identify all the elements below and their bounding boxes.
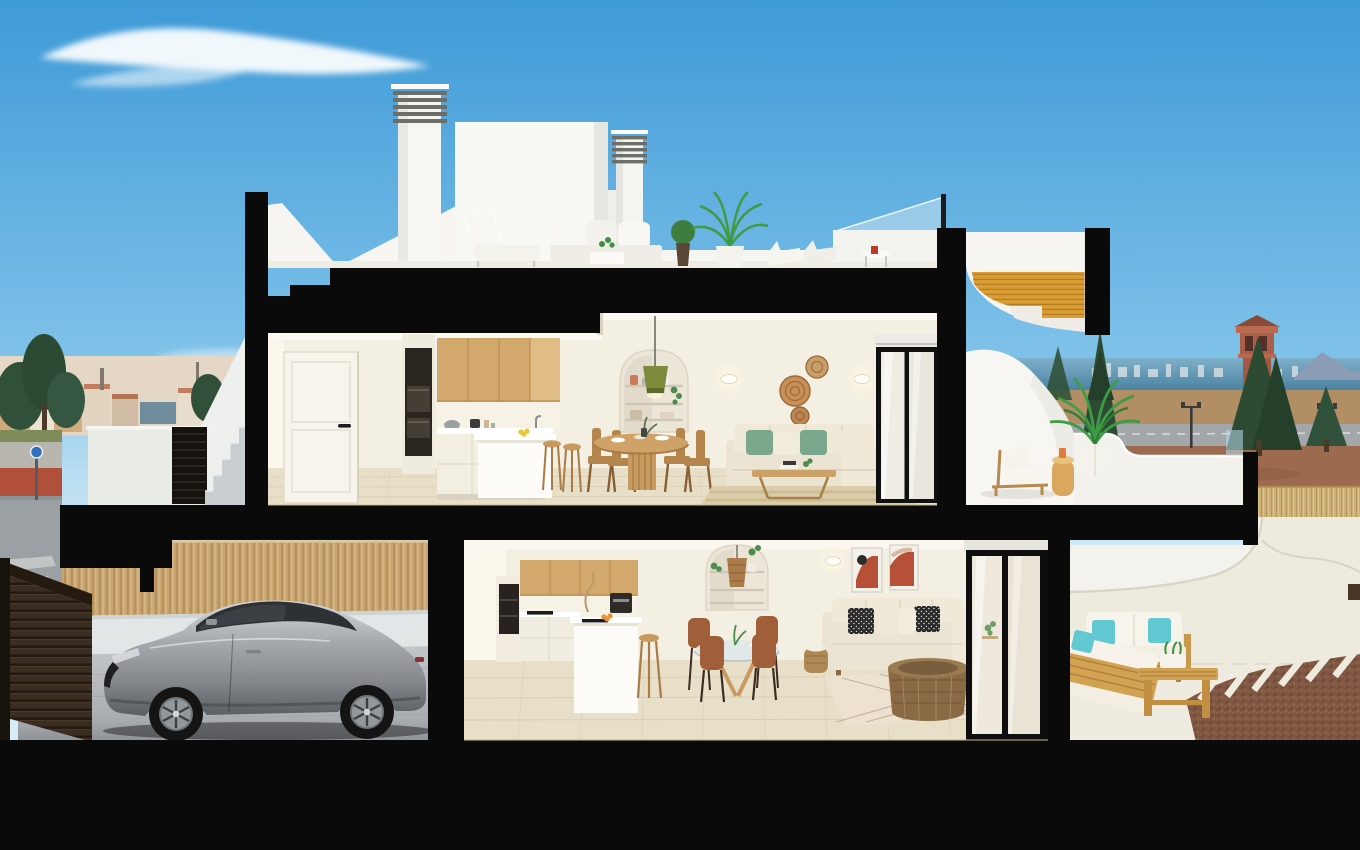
lower-floor (464, 540, 1050, 742)
sliding-door-lower (964, 540, 1050, 740)
art-frame (890, 545, 918, 590)
oak-upper-cabinets (520, 560, 638, 596)
cut-left-strip (245, 192, 268, 506)
entry-door (284, 352, 358, 503)
lower-terrace (1051, 517, 1360, 742)
patterned-pillow (914, 606, 940, 632)
cut-post (140, 540, 154, 592)
wall-sconce (854, 374, 870, 383)
cut-wall-garage (428, 540, 464, 742)
sliding-door-upper (874, 334, 940, 503)
cut-ground (0, 740, 1360, 850)
cut-column-stair (1085, 228, 1110, 335)
cooktop (527, 611, 553, 615)
oven-column (499, 584, 519, 634)
upper-floor (268, 313, 940, 507)
glass-panel (1226, 430, 1243, 456)
cut-right-column (1243, 452, 1258, 545)
car-wheel-front (149, 687, 203, 741)
wall-lamp (826, 557, 841, 566)
patterned-pillow (848, 608, 874, 634)
wall-sconce (721, 374, 737, 383)
island (570, 613, 642, 713)
rattan-coffee-table (888, 658, 968, 721)
car-wheel-rear (340, 685, 394, 739)
chimney-left-icon (391, 84, 449, 268)
lower-niche (706, 545, 768, 610)
blanket-basket (804, 644, 828, 673)
cut-column-living (937, 228, 966, 506)
art-frame (852, 548, 882, 592)
villa-cutaway-render (0, 0, 1360, 850)
entry-gate (172, 427, 207, 504)
door-handle (338, 424, 351, 428)
reed-fence (1252, 486, 1360, 521)
coffee-machine (610, 593, 632, 613)
render-stage (0, 0, 1360, 850)
cut-wall-terrace (1048, 540, 1070, 742)
garage (0, 541, 433, 743)
